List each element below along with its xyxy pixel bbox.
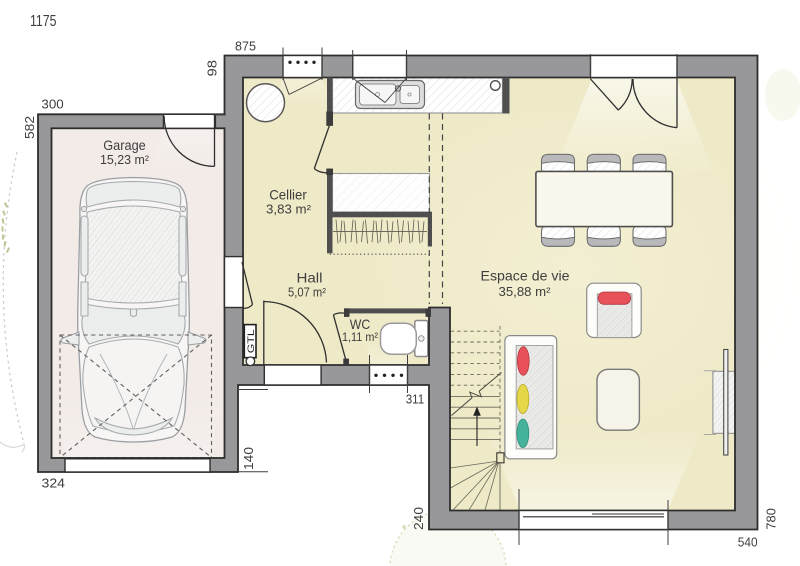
svg-text:311: 311 xyxy=(406,391,425,406)
svg-text:5,07 m²: 5,07 m² xyxy=(288,284,327,299)
svg-text:582: 582 xyxy=(22,116,37,139)
svg-text:300: 300 xyxy=(41,97,63,112)
svg-text:Garage: Garage xyxy=(103,137,146,153)
svg-text:1175: 1175 xyxy=(30,13,57,30)
svg-text:Espace de vie: Espace de vie xyxy=(481,267,570,283)
svg-text:35,88 m²: 35,88 m² xyxy=(499,284,552,299)
svg-text:324: 324 xyxy=(42,476,66,491)
svg-text:780: 780 xyxy=(763,508,778,530)
svg-text:140: 140 xyxy=(241,447,256,470)
svg-text:540: 540 xyxy=(738,534,758,549)
svg-text:15,23 m²: 15,23 m² xyxy=(100,152,150,167)
svg-text:GTL: GTL xyxy=(246,329,256,353)
svg-text:3,83 m²: 3,83 m² xyxy=(266,202,312,217)
svg-text:875: 875 xyxy=(235,38,256,53)
svg-text:Cellier: Cellier xyxy=(269,187,307,203)
svg-text:240: 240 xyxy=(411,507,426,530)
svg-text:1,11 m²: 1,11 m² xyxy=(342,330,378,344)
svg-text:Hall: Hall xyxy=(297,269,323,285)
svg-text:98: 98 xyxy=(205,60,220,77)
